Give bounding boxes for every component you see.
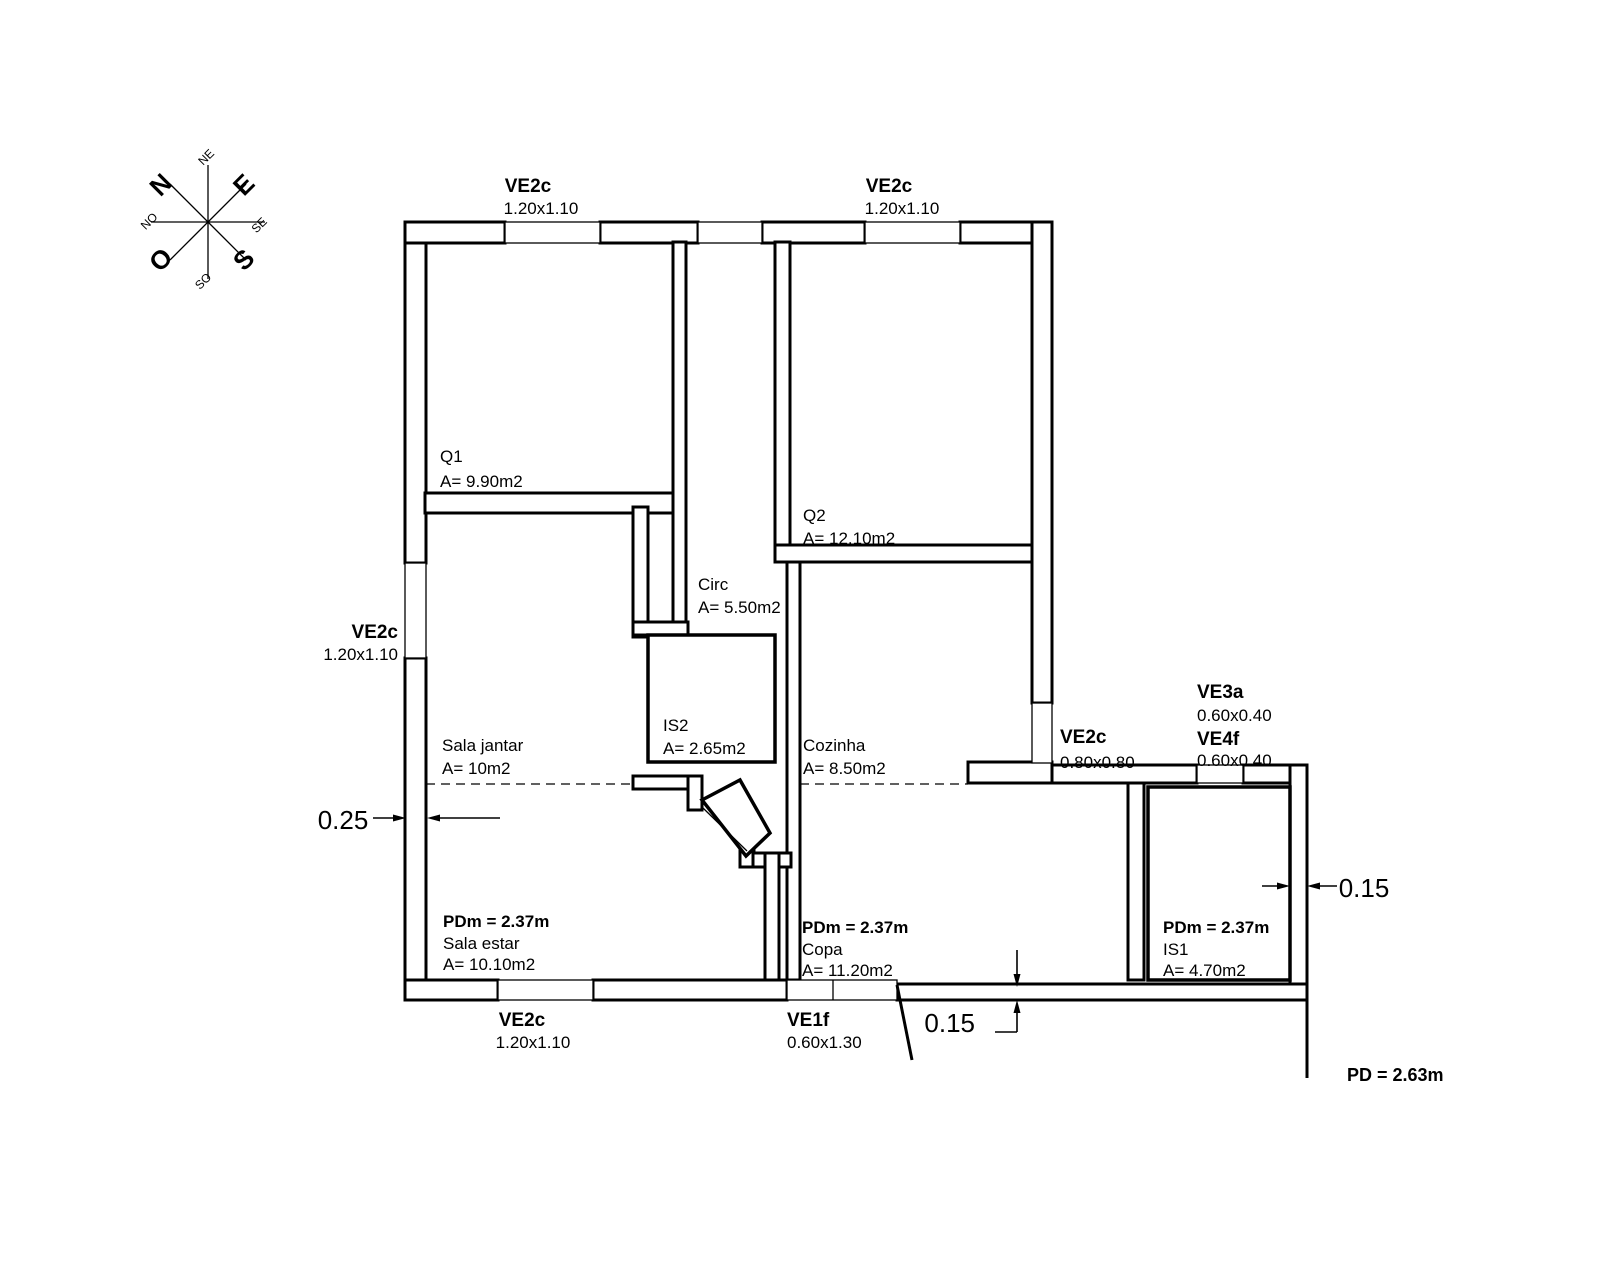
room-name-is1: IS1 bbox=[1163, 940, 1189, 959]
room-name-is2: IS2 bbox=[663, 716, 689, 735]
room-ceiling-copa: PDm = 2.37m bbox=[802, 918, 908, 937]
window-label-ve2c-left: VE2c bbox=[352, 622, 399, 643]
dimension-arrow-right-inner bbox=[1277, 883, 1290, 890]
compass-label-o: O bbox=[143, 242, 179, 278]
wall-is2-top-connector bbox=[633, 622, 688, 635]
wall-cozinha-copa-left bbox=[787, 562, 800, 980]
room-name-q2: Q2 bbox=[803, 506, 826, 525]
window-circ-top-opening bbox=[698, 222, 762, 243]
compass-label-n: N bbox=[143, 167, 177, 201]
window-size-ve1f: 0.60x1.30 bbox=[787, 1033, 862, 1052]
window-ve2c-top-left-opening bbox=[505, 222, 600, 243]
window-ve2c-top-right-opening bbox=[865, 222, 960, 243]
window-size-ve2c-left: 1.20x1.10 bbox=[323, 645, 398, 664]
compass-label-so: SO bbox=[192, 270, 214, 292]
wall-bottom-c bbox=[897, 984, 1307, 1000]
window-ve2c-bottom-opening bbox=[498, 980, 593, 1000]
dimension-right-wall: 0.15 bbox=[1262, 873, 1389, 903]
room-name-cozinha: Cozinha bbox=[803, 736, 866, 755]
window-size-ve4f: 0.60x0.40 bbox=[1197, 751, 1272, 770]
floor-plan-canvas: N E S O NE SE SO NO bbox=[0, 0, 1600, 1280]
room-name-sala-estar: Sala estar bbox=[443, 934, 520, 953]
dimension-value-bottom-wall: 0.15 bbox=[924, 1008, 975, 1038]
room-area-cozinha: A= 8.50m2 bbox=[803, 759, 886, 778]
wall-bottom-b bbox=[593, 980, 787, 1000]
compass-label-s: S bbox=[227, 243, 260, 276]
wall-right-north-wing bbox=[1032, 222, 1052, 703]
room-ceiling-is1: PDm = 2.37m bbox=[1163, 918, 1269, 937]
wall-copa-is1-divider bbox=[1128, 783, 1144, 980]
interior-walls bbox=[425, 242, 1290, 980]
wall-circ-left bbox=[673, 242, 686, 622]
room-name-copa: Copa bbox=[802, 940, 843, 959]
wall-door-stub bbox=[633, 776, 692, 789]
room-area-q2: A= 12.10m2 bbox=[803, 529, 895, 548]
room-ceiling-sala-estar: PDm = 2.37m bbox=[443, 912, 549, 931]
wall-left-upper bbox=[405, 222, 426, 563]
wall-salaestar-copa-divider bbox=[765, 853, 779, 980]
compass-rose: N E S O NE SE SO NO bbox=[138, 146, 270, 292]
wall-top-c bbox=[762, 222, 865, 243]
window-label-ve2c-kitchen: VE2c bbox=[1060, 727, 1107, 748]
window-label-ve3a: VE3a bbox=[1197, 682, 1244, 703]
ceiling-height-note: PD = 2.63m bbox=[1347, 1065, 1444, 1085]
room-area-is2: A= 2.65m2 bbox=[663, 739, 746, 758]
window-size-ve2c-kitchen: 0.80x0.80 bbox=[1060, 753, 1135, 772]
window-label-ve1f: VE1f bbox=[787, 1010, 830, 1031]
window-size-ve2c-bottom: 1.20x1.10 bbox=[496, 1033, 571, 1052]
wall-top-a bbox=[405, 222, 505, 243]
window-label-ve2c-bottom: VE2c bbox=[499, 1010, 546, 1031]
wall-q2-left bbox=[775, 242, 790, 545]
window-size-ve2c-top-left: 1.20x1.10 bbox=[504, 199, 579, 218]
compass-label-e: E bbox=[227, 168, 260, 201]
wall-door-hinge-post bbox=[688, 776, 702, 810]
window-ve2c-left-opening bbox=[405, 563, 426, 658]
window-ve2c-kitchen-opening bbox=[1032, 703, 1052, 763]
room-name-circ: Circ bbox=[698, 575, 729, 594]
wall-right-east-wing bbox=[1290, 765, 1307, 1000]
interior-door-leaf bbox=[702, 780, 770, 856]
room-area-sala-estar: A= 10.10m2 bbox=[443, 955, 535, 974]
room-area-is1: A= 4.70m2 bbox=[1163, 961, 1246, 980]
wall-east-wing-top-stub bbox=[968, 762, 1052, 783]
compass-label-no: NO bbox=[138, 210, 161, 233]
room-name-q1: Q1 bbox=[440, 447, 463, 466]
compass-label-ne: NE bbox=[195, 146, 217, 168]
room-area-copa: A= 11.20m2 bbox=[802, 961, 893, 980]
wall-left-lower bbox=[405, 658, 426, 1000]
window-ve1f-opening bbox=[787, 980, 897, 1000]
wall-salajantar-right bbox=[633, 507, 648, 637]
room-name-sala-jantar: Sala jantar bbox=[442, 736, 524, 755]
window-size-ve3a: 0.60x0.40 bbox=[1197, 706, 1272, 725]
room-area-circ: A= 5.50m2 bbox=[698, 598, 781, 617]
wall-top-b bbox=[600, 222, 698, 243]
dimension-value-left-wall: 0.25 bbox=[318, 805, 369, 835]
room-area-sala-jantar: A= 10m2 bbox=[442, 759, 511, 778]
floor-plan-page: N E S O NE SE SO NO bbox=[0, 0, 1600, 1280]
dimension-arrow-right-outer bbox=[1307, 883, 1320, 890]
compass-label-se: SE bbox=[249, 215, 270, 236]
room-area-q1: A= 9.90m2 bbox=[440, 472, 523, 491]
wall-bottom-a bbox=[405, 980, 498, 1000]
window-label-ve2c-top-right: VE2c bbox=[866, 176, 913, 197]
dimension-value-right-wall: 0.15 bbox=[1339, 873, 1390, 903]
window-label-ve2c-top-left: VE2c bbox=[505, 176, 552, 197]
window-size-ve2c-top-right: 1.20x1.10 bbox=[865, 199, 940, 218]
window-label-ve4f: VE4f bbox=[1197, 729, 1240, 750]
dimension-arrow-left-inner bbox=[427, 815, 440, 822]
window-openings bbox=[405, 222, 1243, 1000]
dimension-arrow-bottom-lower bbox=[1014, 1000, 1021, 1013]
